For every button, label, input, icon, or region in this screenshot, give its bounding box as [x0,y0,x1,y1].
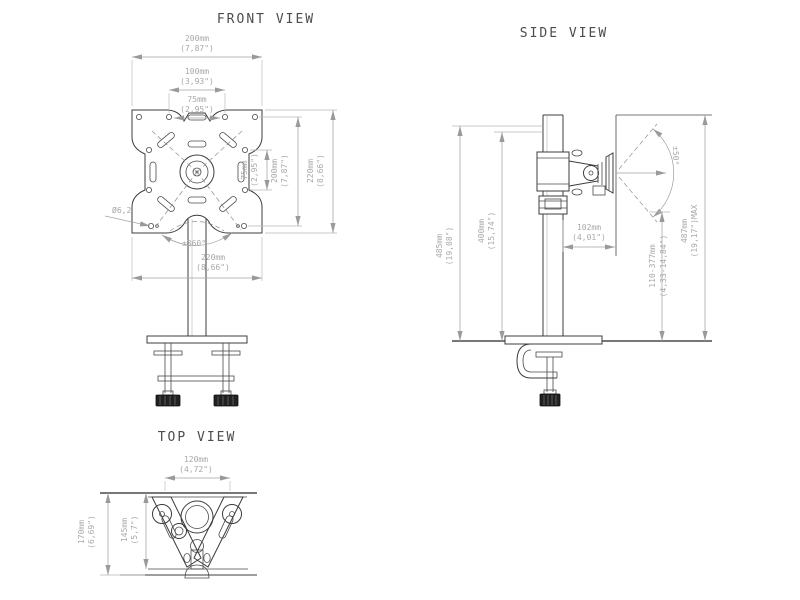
svg-text:(7,87"): (7,87") [280,154,289,188]
top-dimensions: 120mm (4,72") 170mm (6,69") 145mm (5,7") [77,455,230,575]
svg-text:(5,7"): (5,7") [130,516,139,545]
svg-text:(4,01"): (4,01") [572,233,606,242]
svg-text:(2,95"): (2,95") [250,153,259,187]
head-screw-bottom [572,189,582,195]
dim-120mm: 120mm [184,455,208,464]
front-desk-clamp [147,336,247,406]
pivot-joint [584,166,599,181]
svg-text:(3,93"): (3,93") [180,77,214,86]
svg-text:(8,66"): (8,66") [316,154,325,188]
top-view: TOP VIEW [77,430,257,578]
dim-rotation: ±360° [182,239,206,248]
dim-tilt-angle: ±50° [671,146,680,165]
svg-text:(4,33-14,84"): (4,33-14,84") [659,235,668,298]
base-foot [185,565,209,578]
svg-text:(19,08"): (19,08") [445,227,454,266]
dim-220mm-bottom: 220mm [201,253,225,262]
svg-text:(2,95"): (2,95") [180,105,214,114]
dim-145mm: 145mm [120,518,129,542]
svg-text:(4,72"): (4,72") [179,465,213,474]
dim-400mm: 400mm [477,219,486,243]
dim-220mm-vertical: 220mm [306,159,315,183]
front-dimensions: 200mm (7,87") 100mm (3,93") 75mm (2,95")… [105,34,337,281]
clamp-knob-left [156,395,180,406]
svg-text:(19,17")MAX: (19,17")MAX [690,204,699,257]
bracket-arm-left [152,497,201,567]
top-bracket [120,497,257,578]
dim-100mm-width: 100mm [185,67,209,76]
front-pole [188,219,206,336]
front-view: FRONT VIEW [105,12,337,406]
side-view-title: SIDE VIEW [520,26,608,41]
top-view-title: TOP VIEW [158,430,237,445]
technical-drawing: FRONT VIEW [0,0,800,600]
desk-plate [147,336,247,343]
clamp-knob-right [214,395,238,406]
svg-text:(8,66"): (8,66") [196,263,230,272]
side-pole [543,115,563,336]
rotation-axes [152,131,242,231]
top-tab-slot [188,115,206,120]
side-clamp [505,336,602,406]
dim-102mm: 102mm [577,223,601,232]
svg-text:(7,87"): (7,87") [180,44,214,53]
dim-170mm: 170mm [77,520,86,544]
clamp-top-plate [505,336,602,344]
dim-200mm-width: 200mm [185,34,209,43]
dim-487mm-max: 487mm [680,219,689,243]
dim-485mm: 485mm [435,234,444,258]
front-view-title: FRONT VIEW [217,12,315,27]
clamp-knob-side [540,394,560,406]
svg-text:(15,74"): (15,74") [487,212,496,251]
roller-right [223,505,242,524]
vesa-plate-side [606,153,613,193]
drawing-page: FRONT VIEW [0,0,800,600]
dim-75mm-vertical: 75mm [240,160,249,179]
side-dimensions: 485mm (19,08") 400mm (15,74") 102mm (4,0… [435,115,705,341]
hole-leader [105,216,150,226]
side-view: SIDE VIEW [435,26,712,406]
tilt-head [537,150,613,214]
svg-text:(6,69"): (6,69") [87,515,96,549]
dim-hole-diameter: Ø6,2 [112,205,131,215]
dim-75mm-width: 75mm [187,95,206,104]
head-screw-top [572,150,582,156]
dim-200mm-vertical: 200mm [270,159,279,183]
adjust-knob-circle [172,524,187,539]
dim-height-range: 110-377mm [648,244,657,288]
